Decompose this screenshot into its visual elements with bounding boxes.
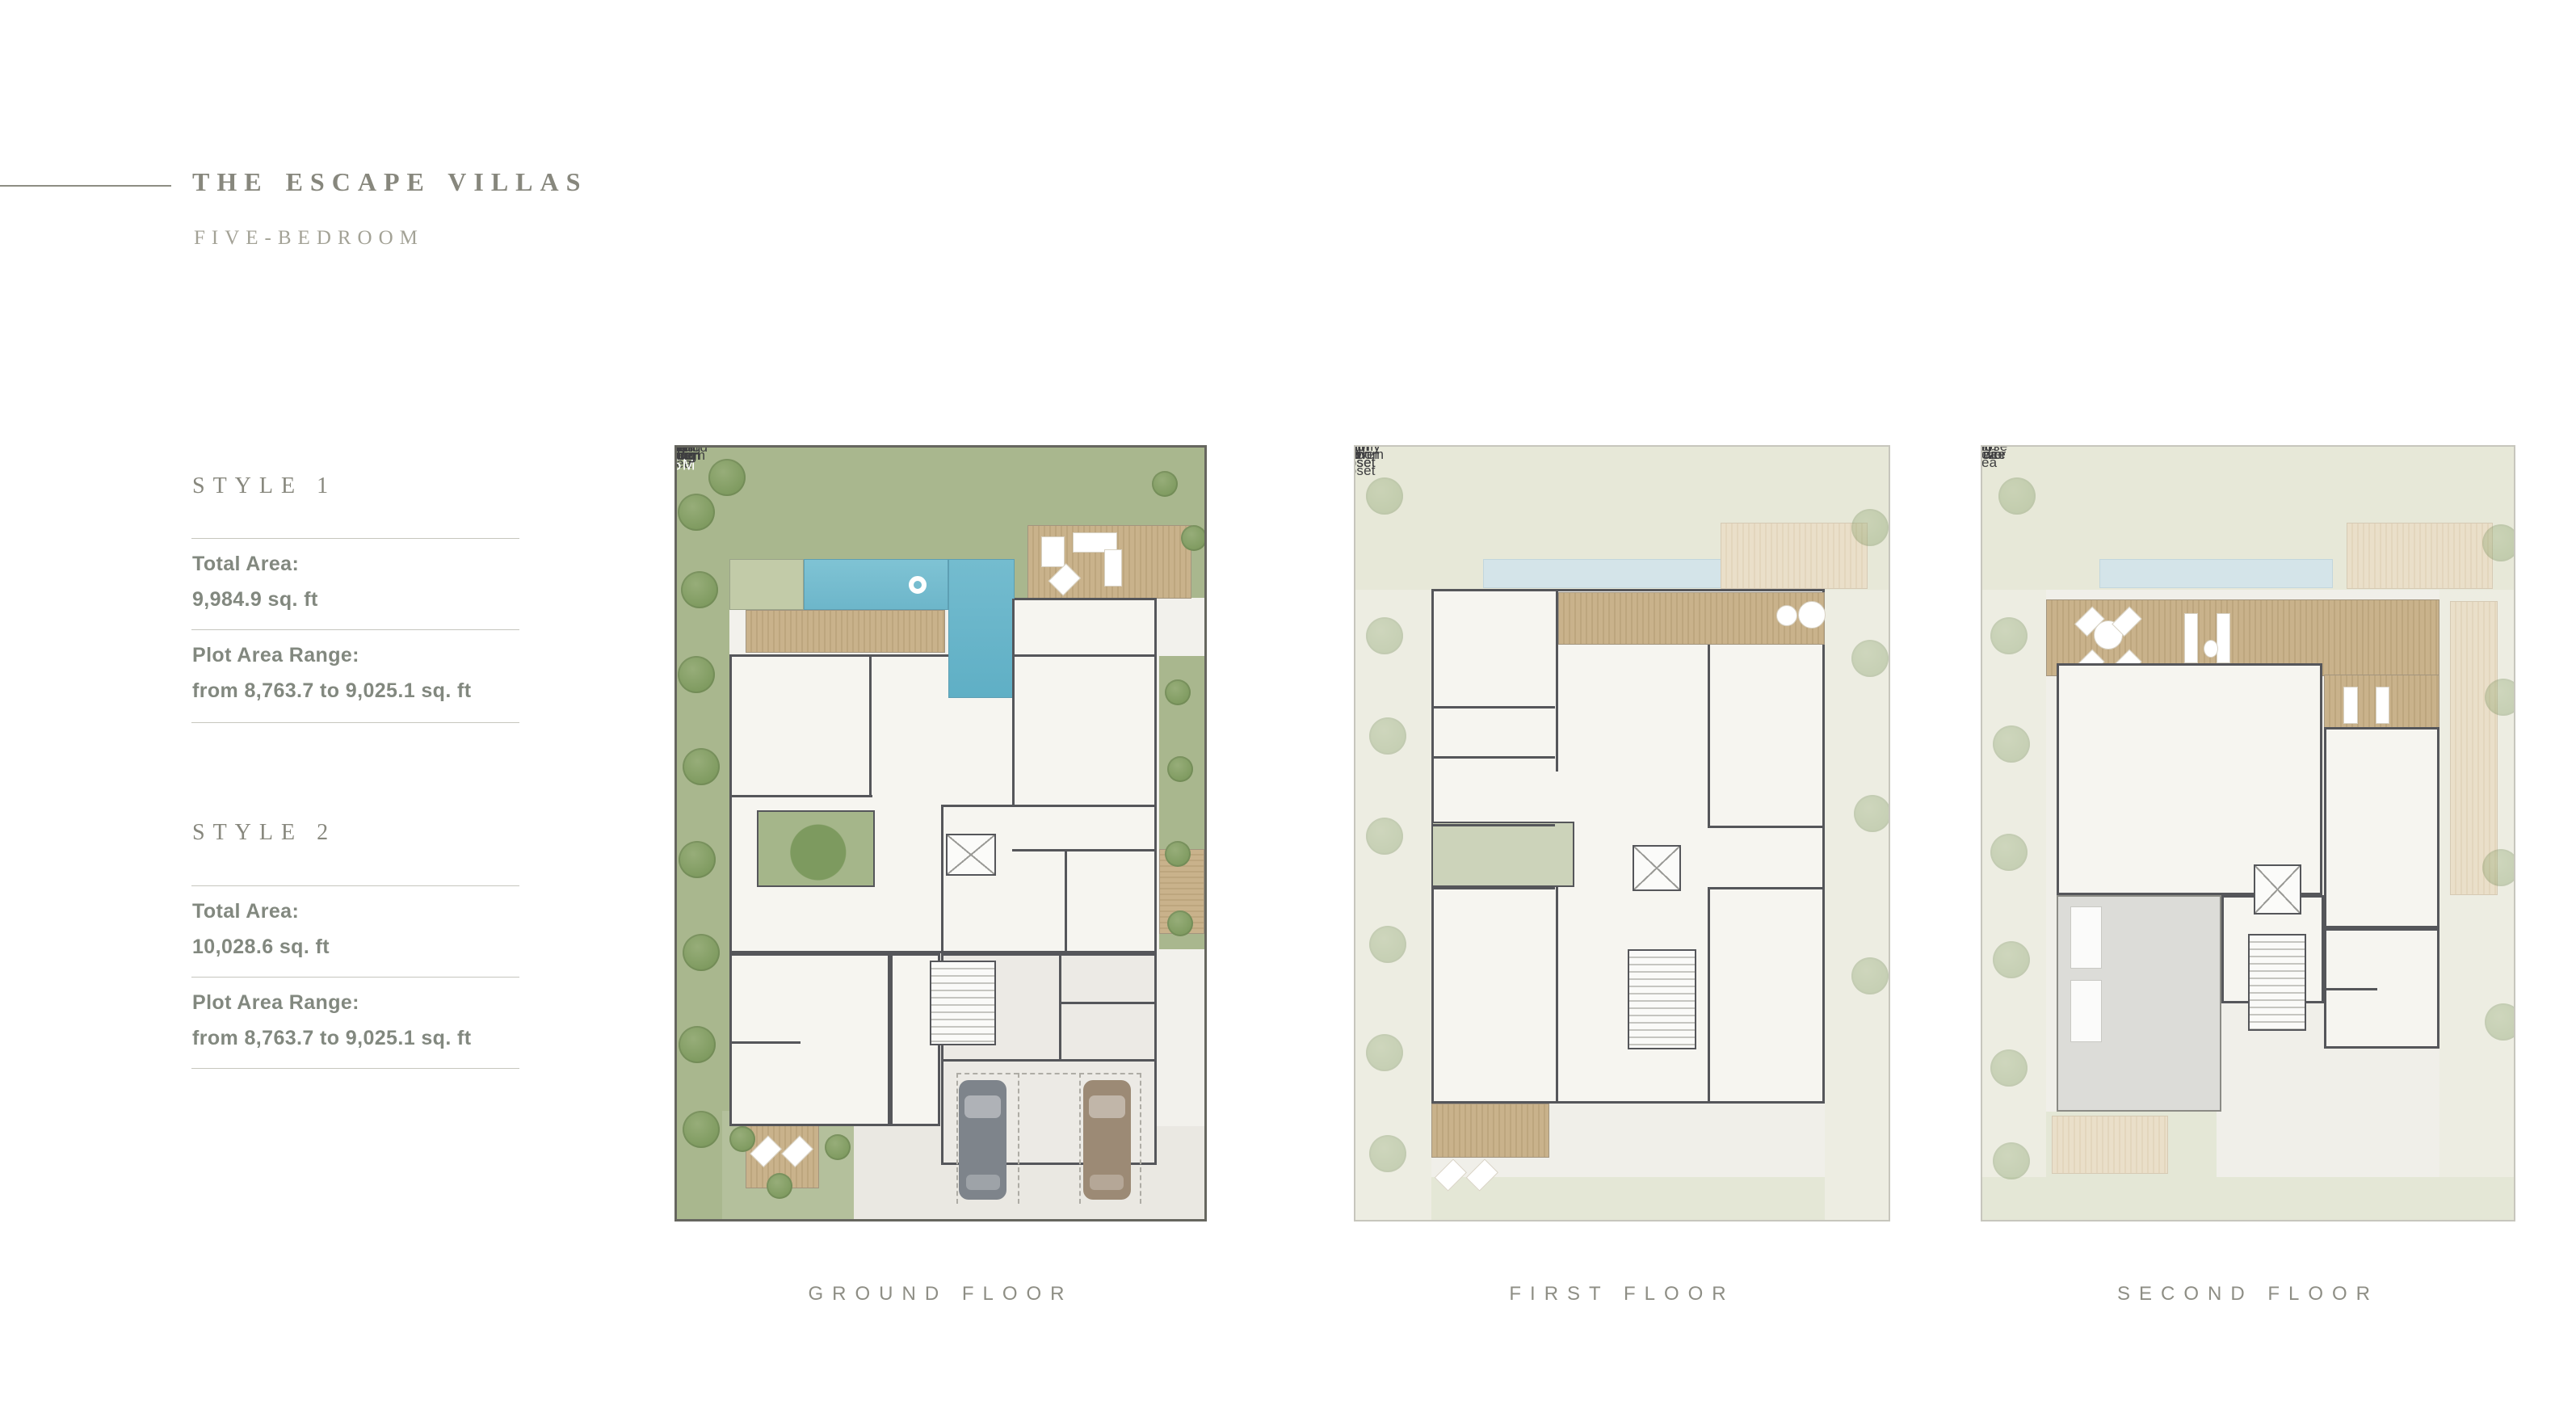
staircase xyxy=(2248,934,2306,1031)
faded-side-right xyxy=(1825,590,1889,1220)
style1-heading: STYLE 1 xyxy=(192,473,336,499)
furniture xyxy=(2376,687,2389,724)
wall xyxy=(1708,645,1710,826)
parking-stall-divider xyxy=(1079,1073,1081,1204)
furniture xyxy=(2204,640,2218,658)
tree-icon xyxy=(683,748,720,785)
first-floor-plan: BalconyBedroom 1Steam ShowerMaster BathW… xyxy=(1354,445,1890,1221)
divider xyxy=(191,538,519,539)
divider xyxy=(191,1068,519,1069)
faded-pool xyxy=(2099,559,2334,588)
style2-heading: STYLE 2 xyxy=(192,820,336,846)
parking-stall-divider xyxy=(1018,1073,1019,1204)
ground-floor-plan: Outdoor Seating Area9.5 X 2.5MPoolBreakf… xyxy=(674,445,1207,1221)
tree-icon xyxy=(1165,841,1191,867)
guest-suite-block xyxy=(729,953,890,1127)
wall xyxy=(729,1041,801,1044)
divider xyxy=(191,885,519,886)
brochure-page: THE ESCAPE VILLAS FIVE-BEDROOM STYLE 1 T… xyxy=(0,0,2576,1417)
wall xyxy=(1556,589,1558,772)
faded-pool xyxy=(1483,559,1723,588)
car xyxy=(959,1080,1006,1200)
tree-icon xyxy=(679,1026,716,1063)
tree-icon xyxy=(1851,509,1889,546)
wall xyxy=(729,795,872,797)
wall xyxy=(1012,599,1015,805)
wall xyxy=(1431,887,1555,889)
wall xyxy=(1708,887,1710,1104)
tree-icon xyxy=(1165,679,1191,705)
wall xyxy=(1012,849,1158,851)
style2-plot-area-value: from 8,763.7 to 9,025.1 sq. ft xyxy=(192,1027,471,1050)
tree-icon xyxy=(679,841,716,878)
tree-icon xyxy=(683,934,720,971)
style1-plot-area-label: Plot Area Range: xyxy=(192,644,359,667)
staircase xyxy=(930,961,996,1045)
tree-icon xyxy=(2482,524,2515,561)
lift-shaft xyxy=(946,834,996,877)
tree-icon xyxy=(1990,617,2028,654)
wall xyxy=(941,1059,1158,1062)
furniture xyxy=(2217,613,2230,663)
car xyxy=(1083,1080,1131,1200)
wall xyxy=(2324,988,2377,990)
tree-icon xyxy=(1369,717,1406,755)
tree-icon xyxy=(1152,471,1178,497)
fitness-block xyxy=(2324,727,2439,928)
furniture xyxy=(1104,549,1122,587)
courtyard xyxy=(757,810,875,888)
wall xyxy=(1708,887,1825,889)
wall xyxy=(1059,1002,1157,1004)
faded-deck-bottom xyxy=(2052,1116,2169,1174)
style1-plot-area-value: from 8,763.7 to 9,025.1 sq. ft xyxy=(192,679,471,703)
tree-icon xyxy=(1851,640,1889,677)
wall xyxy=(941,805,1158,807)
room-label: Entrance Garden xyxy=(674,445,705,464)
style1-total-area-value: 9,984.9 sq. ft xyxy=(192,588,318,612)
caption-ground-floor: GROUND FLOOR xyxy=(674,1283,1207,1306)
style2-total-area-label: Total Area: xyxy=(192,900,299,923)
tree-icon xyxy=(1851,957,1889,994)
skylight xyxy=(2070,980,2102,1042)
tree-icon xyxy=(678,656,715,693)
divider xyxy=(191,629,519,630)
furniture xyxy=(1041,536,1065,567)
wall xyxy=(1065,849,1067,953)
faded-deck xyxy=(1721,523,1868,589)
pool-float-icon xyxy=(909,576,927,594)
caption-first-floor: FIRST FLOOR xyxy=(1354,1283,1890,1306)
furniture xyxy=(2184,613,2198,663)
tree-icon xyxy=(1993,725,2030,763)
wall xyxy=(1431,756,1555,759)
style1-total-area-label: Total Area: xyxy=(192,553,299,576)
tree-icon xyxy=(1990,1049,2028,1087)
tree-icon xyxy=(683,1111,720,1148)
tree-icon xyxy=(2482,849,2515,886)
furniture xyxy=(2343,687,2357,724)
pool-deep-section xyxy=(948,559,1015,698)
tree-icon xyxy=(681,571,718,608)
room-label: Balcony xyxy=(1354,445,1380,455)
tree-icon xyxy=(1369,1135,1406,1172)
style2-total-area-value: 10,028.6 sq. ft xyxy=(192,936,330,959)
tree-icon xyxy=(1854,795,1890,832)
faded-deck xyxy=(2347,523,2493,589)
tree-icon xyxy=(1990,834,2028,871)
poolside-deck xyxy=(746,610,945,653)
wall xyxy=(1431,824,1555,826)
faded-garden-bottom xyxy=(1982,1177,2514,1220)
tree-icon xyxy=(1181,525,1207,551)
wall xyxy=(869,654,872,795)
lawn-left-strip xyxy=(677,448,729,1219)
planter xyxy=(729,559,803,609)
page-subtitle: FIVE-BEDROOM xyxy=(194,227,424,250)
main-building-block xyxy=(729,654,1157,953)
faded-side-left xyxy=(1355,590,1431,1220)
style2-plot-area-label: Plot Area Range: xyxy=(192,991,359,1015)
furniture xyxy=(1798,601,1826,629)
wall xyxy=(1556,887,1558,1104)
skylight xyxy=(2070,906,2102,969)
page-title: THE ESCAPE VILLAS xyxy=(192,167,587,197)
pool xyxy=(804,559,949,610)
faded-side-left xyxy=(1982,590,2046,1220)
balcony-deck-bottom xyxy=(1431,1104,1549,1158)
wall xyxy=(1431,706,1555,708)
tree-icon xyxy=(1369,926,1406,963)
second-floor-plan: Roof TerraceLounge AreaMulti-purpose Are… xyxy=(1981,445,2515,1221)
header-rule-line xyxy=(0,185,171,187)
divider xyxy=(191,722,519,723)
tree-icon xyxy=(1998,477,2036,515)
tree-icon xyxy=(1366,617,1403,654)
breakfast-wing xyxy=(1009,598,1157,657)
lounge-block xyxy=(2057,663,2322,895)
divider xyxy=(191,977,519,978)
caption-second-floor: SECOND FLOOR xyxy=(1981,1283,2515,1306)
wall xyxy=(1708,826,1825,828)
staircase xyxy=(1628,949,1697,1049)
lift-shaft xyxy=(1633,845,1680,891)
wall xyxy=(941,805,943,952)
faded-garden-bottom xyxy=(1431,1177,1824,1220)
wall xyxy=(1059,953,1061,1060)
tree-icon xyxy=(825,1134,851,1160)
lift-shaft xyxy=(2254,864,2301,915)
room-label: Steam Shower xyxy=(1981,445,2006,463)
courtyard-void xyxy=(1431,822,1574,887)
tree-icon xyxy=(767,1173,792,1199)
